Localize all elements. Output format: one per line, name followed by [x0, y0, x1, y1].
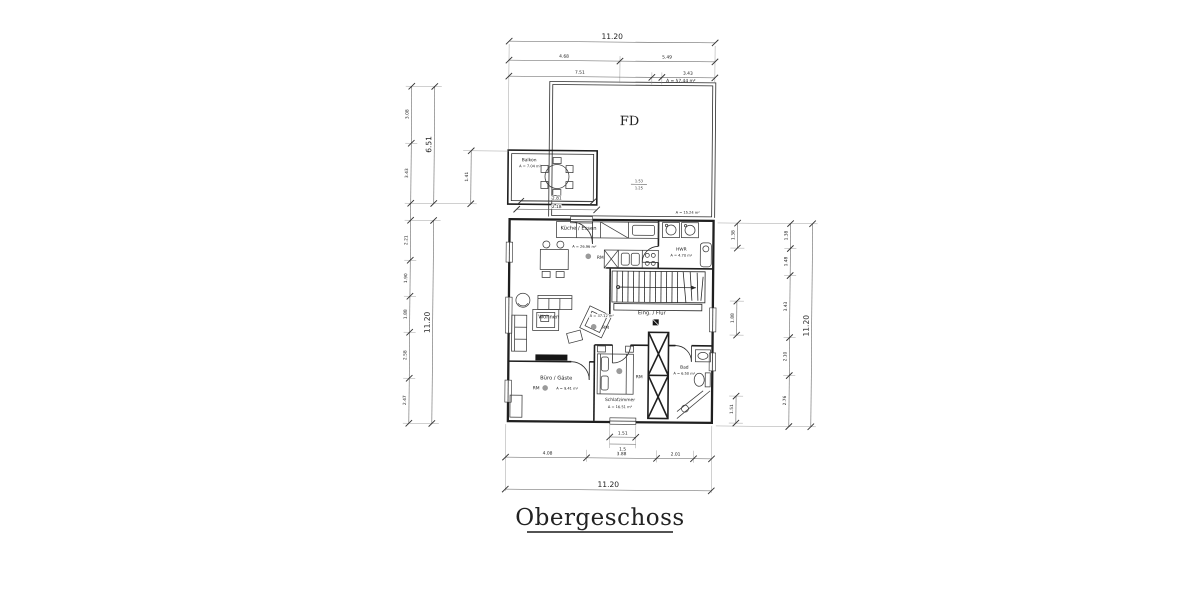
dim-balcony-1: 2.81 — [552, 195, 562, 201]
dim-bottom-c0: 4.08 — [543, 450, 553, 456]
dim-top-total: 11.20 — [601, 32, 623, 41]
balcony-table — [545, 164, 569, 188]
dim-top-seg-c: 7.51 — [575, 70, 585, 76]
floor-plan-sheet: FD 1.53 1.25 A = 15.24 m² Balkon A = 7.0… — [0, 0, 1200, 600]
bedroom-label: Schlafzimmer — [605, 397, 635, 403]
dim-bottom-c2: 2.01 — [671, 452, 681, 458]
office-rm-dot — [542, 385, 548, 391]
dim-top: 11.20 4.68 5.49 7.51 3.43 A = 57.44 m² — [505, 31, 718, 151]
dim-right-c3: 2.10 — [782, 351, 788, 361]
dim-left-upper: 6.51 — [424, 136, 433, 153]
dim-right-s0: 1.38 — [730, 230, 736, 240]
roof-label: FD — [620, 114, 640, 129]
living-area: A = 37.12 m² — [590, 314, 615, 318]
dim-right-c1: 1.48 — [783, 256, 789, 266]
roof-dim-2: 1.25 — [635, 186, 643, 190]
hwr-label: HWR — [676, 247, 687, 253]
dim-top-seg-a: 4.68 — [559, 54, 569, 60]
dim-left-c3: 1.90 — [403, 273, 409, 283]
sheet-title: Obergeschoss — [515, 505, 684, 531]
dim-right-c2: 3.43 — [783, 301, 789, 311]
kitchen-rm: RM — [597, 255, 604, 261]
hall-symbol — [653, 319, 659, 325]
living-rm-dot — [591, 324, 597, 330]
dim-left-inner: 1.41 — [464, 172, 470, 182]
dim-left-c5: 2.58 — [402, 350, 408, 360]
dim-left-c4: 1.88 — [403, 309, 409, 319]
hwr-area: A = 4.70 m² — [670, 254, 692, 258]
bedroom-rm: RM — [636, 374, 643, 380]
dim-left: 3.08 3.43 2.21 1.90 1.88 2.58 2.47 6.51 … — [402, 83, 510, 427]
roof-area: A = 57.44 m² — [666, 78, 696, 84]
bedroom-area: A = 16.51 m² — [608, 405, 633, 409]
roof-dim-1: 1.53 — [635, 179, 643, 183]
dim-bottom: 1.51 1.5 4.08 3.88 2.01 11.20 — [502, 424, 715, 494]
dim-bottom-c1: 3.88 — [617, 451, 627, 457]
dim-left-c6: 2.47 — [402, 395, 408, 405]
dim-left-total: 11.20 — [423, 311, 432, 333]
bath-label: Bad — [680, 365, 689, 371]
dim-left-c1: 3.43 — [404, 168, 410, 178]
dim-bottom-small-a: 1.51 — [618, 431, 628, 437]
dim-balcony-2: 2.18 — [552, 204, 562, 210]
dim-top-seg-b: 5.49 — [662, 54, 672, 60]
living-label: Wohnen — [538, 314, 559, 320]
dim-right-s2: 1.51 — [729, 404, 735, 414]
dim-bottom-total: 11.20 — [598, 480, 620, 489]
dim-right-c0: 1.38 — [783, 230, 789, 240]
duct-shaft — [648, 332, 669, 418]
dim-right-total: 11.20 — [802, 315, 811, 337]
balcony-label: Balkon — [522, 157, 537, 163]
balcony-chairs — [541, 157, 573, 195]
dim-left-c0: 3.08 — [404, 109, 410, 119]
dim-right-s1: 1.88 — [730, 313, 736, 323]
dim-right: 1.38 1.88 1.51 1.38 1.48 3.43 2.10 2.76 … — [716, 220, 818, 430]
kitchen-area: A = 26.96 m² — [572, 245, 597, 249]
roof-area-lower: A = 15.24 m² — [676, 211, 701, 215]
dim-top-seg-d: 3.43 — [683, 71, 693, 77]
office-area: A = 9.41 m² — [556, 387, 578, 391]
sideboard — [535, 354, 567, 360]
office-rm: RM — [533, 385, 540, 391]
dim-left-c2: 2.21 — [403, 235, 409, 245]
floor-plan-drawing: FD 1.53 1.25 A = 15.24 m² Balkon A = 7.0… — [0, 0, 1200, 600]
bath-area: A = 6.50 m² — [673, 372, 695, 376]
hall-label: Eing. / Flur — [638, 310, 667, 316]
balcony-area: A = 7.04 m² — [519, 164, 541, 168]
office-label: Büro / Gäste — [540, 375, 572, 381]
kitchen-label: Küche / Essen — [561, 226, 597, 232]
kitchen-rm-dot — [585, 253, 591, 259]
dim-right-c4: 2.76 — [782, 395, 788, 405]
living-rm: RM — [602, 325, 609, 331]
